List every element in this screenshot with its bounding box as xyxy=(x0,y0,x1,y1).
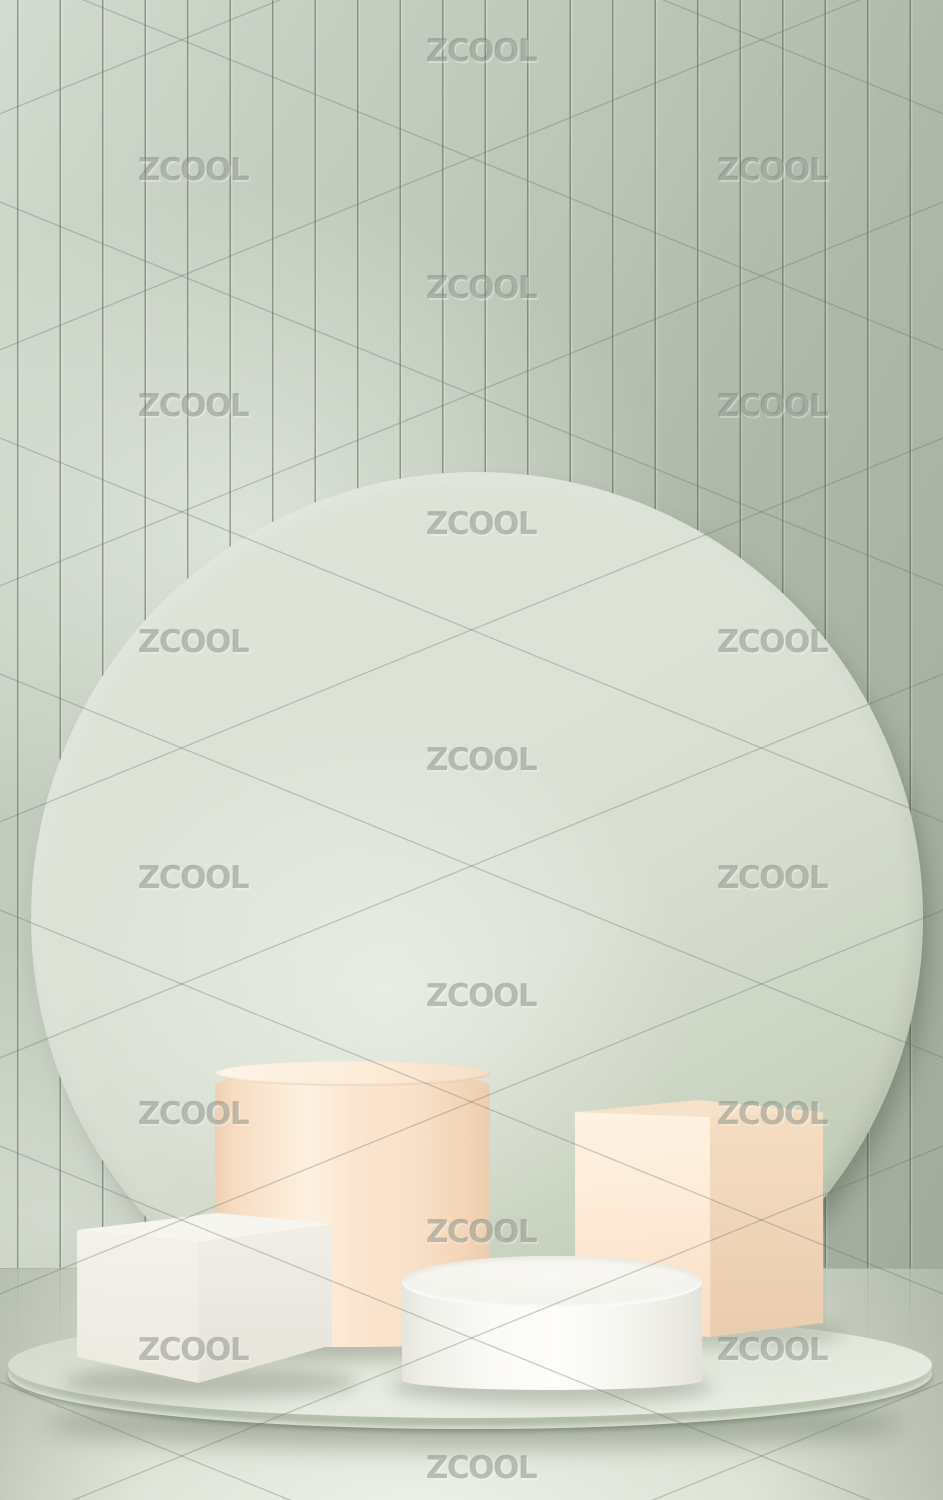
watermark-text: ZCOOL xyxy=(717,1332,827,1368)
watermark-text: ZCOOL xyxy=(717,1096,827,1132)
product-podium-scene: ZCOOLZCOOLZCOOLZCOOLZCOOLZCOOLZCOOLZCOOL… xyxy=(0,0,943,1500)
watermark-text: ZCOOL xyxy=(426,33,536,69)
watermark-text: ZCOOL xyxy=(426,270,536,306)
watermark-text: ZCOOL xyxy=(426,1214,536,1250)
watermark-text: ZCOOL xyxy=(138,388,248,424)
watermark-text: ZCOOL xyxy=(426,1450,536,1486)
watermark-text: ZCOOL xyxy=(426,742,536,778)
watermark-text: ZCOOL xyxy=(138,1096,248,1132)
watermark-text: ZCOOL xyxy=(717,624,827,660)
watermark-text: ZCOOL xyxy=(138,1332,248,1368)
watermark-text: ZCOOL xyxy=(426,978,536,1014)
watermark-layer: ZCOOLZCOOLZCOOLZCOOLZCOOLZCOOLZCOOLZCOOL… xyxy=(0,0,943,1500)
watermark-text: ZCOOL xyxy=(717,860,827,896)
watermark-text: ZCOOL xyxy=(138,860,248,896)
watermark-text: ZCOOL xyxy=(138,152,248,188)
watermark-text: ZCOOL xyxy=(426,506,536,542)
watermark-text: ZCOOL xyxy=(717,388,827,424)
watermark-text: ZCOOL xyxy=(717,152,827,188)
watermark-text: ZCOOL xyxy=(138,624,248,660)
